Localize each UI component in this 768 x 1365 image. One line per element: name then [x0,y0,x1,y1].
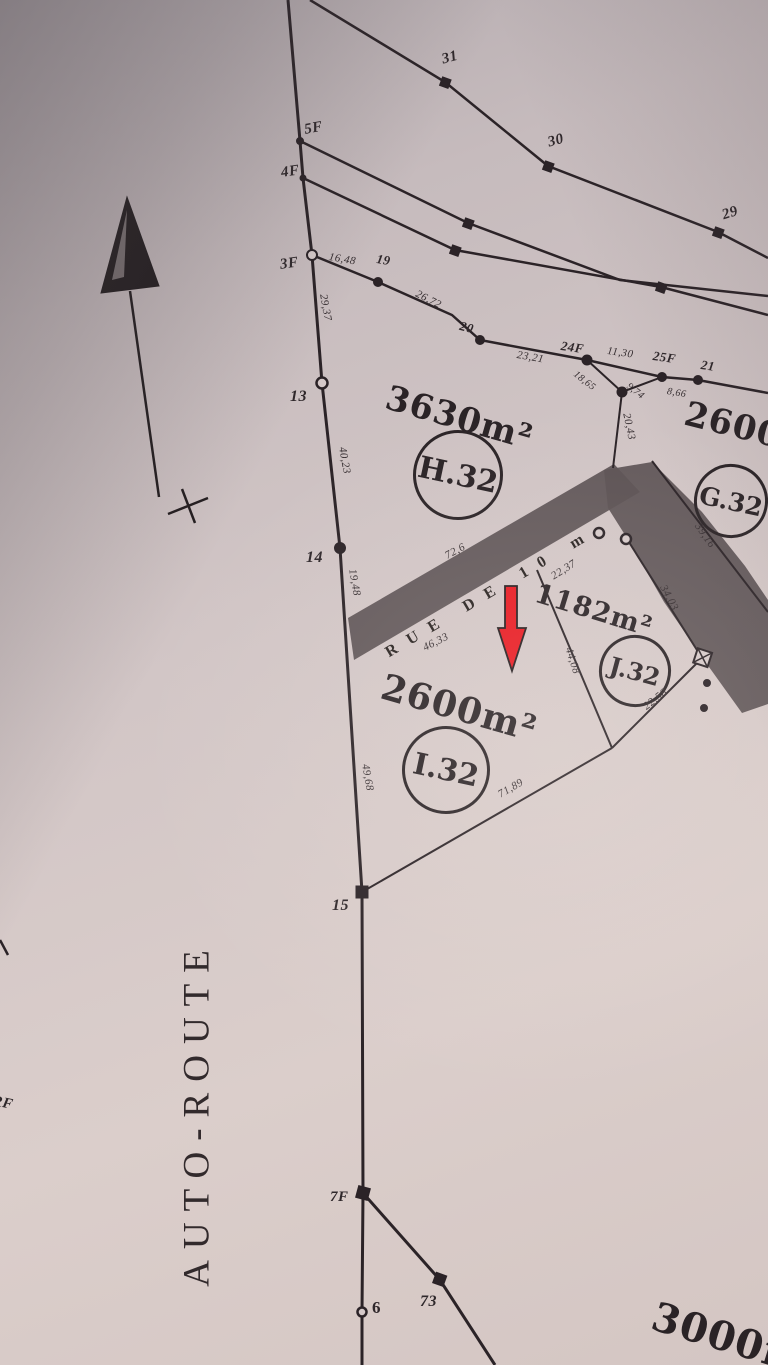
point-label-24f: 24F [560,338,585,357]
cadastral-map-photo: AUTO-ROUTE RUE DE 10 m 3630m² 2600m² 118… [0,0,768,1365]
north-fence-line [310,0,768,258]
red-arrow-annotation [498,586,526,671]
north-arrow-icon [101,197,208,523]
point-label-14: 14 [306,549,323,567]
main-boundary-line [288,0,363,1365]
point-label-15: 15 [332,897,349,915]
point-label-25f: 25F [652,348,677,367]
point-label-19: 19 [375,251,392,269]
crossed-square-marker [693,648,712,667]
point-label-5f: 5F [303,119,324,139]
left-edge-tick [0,940,8,955]
station-cross-icon [168,489,208,523]
point-label-3f: 3F [279,254,300,273]
point-label-21: 21 [700,357,716,375]
point-label-73: 73 [420,1293,437,1311]
autoroute-label: AUTO-ROUTE [176,939,219,1287]
point-label-13: 13 [290,388,307,406]
line-from-4f [303,178,768,315]
point-label-7f: 7F [330,1189,349,1206]
point-label-6: 6 [372,1298,381,1318]
branch-7f-73 [363,1193,495,1365]
line-from-5f [300,141,768,296]
point-label-4f: 4F [280,162,301,181]
edge-20-43 [613,392,622,468]
